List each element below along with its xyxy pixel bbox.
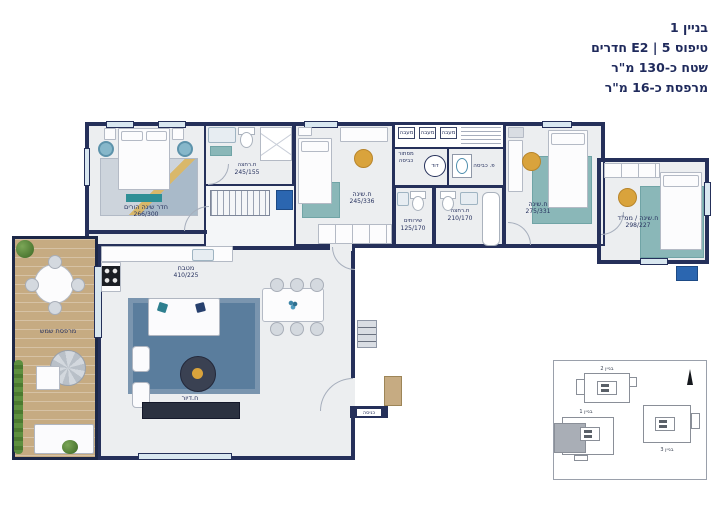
pillow [301,141,329,152]
ac-condenser: מעבה [419,127,436,139]
inset-building2-label: בניין 2 [600,366,613,372]
core-slit [601,389,609,392]
core-slit [659,425,667,428]
room-dims: 210/170 [448,215,473,223]
plant [16,240,34,258]
header-area: שטח כ-130 מ"ר [591,58,708,78]
condenser-label: מעבה [400,130,414,136]
plant [62,440,78,454]
room-name: חדר שינה הורים [124,203,168,211]
desk-chair [618,188,637,207]
armchair [132,346,150,372]
wall-niche [357,320,377,348]
window [704,182,711,216]
label-toilet: שירותים 125/170 [401,218,426,232]
ac-unit [676,266,698,281]
label-laundry: מסתור כביסה [393,151,419,165]
room-dims: 275/331 [526,208,551,216]
dining-chair [290,322,304,336]
closet [318,224,392,244]
label-balcony: מרפסת שמש [40,327,76,335]
header-balcony: מרפסת כ-16 מ"ר [591,78,708,98]
room-name: ח.דיור [182,394,199,402]
label-bedroom2: ח.שינה 245/336 [350,190,375,206]
window [106,121,134,128]
pouf [98,141,114,157]
sink [397,192,409,206]
condenser-label: מעבה [421,130,435,136]
label-laundry-corner: פ. כביסה [473,163,494,170]
building3-wing [691,413,700,429]
stairs [210,190,270,216]
key-plan-inset: בניין 2 בניין 1 בניין 3 [553,360,707,480]
dining-chair [290,278,304,292]
elevator [276,190,293,210]
room-name: ח.שינה [526,200,551,208]
floorplan-page: בניין 1 טיפוס E2 | 5 חדרים שטח כ-130 מ"ר… [0,0,725,508]
room-name: מרפסת שמש [40,327,76,335]
nightstand [172,128,184,140]
wardrobe [604,163,660,178]
dining-chair [270,278,284,292]
desk-chair [354,149,373,168]
north-arrow-icon [687,369,693,385]
nightstand [104,128,116,140]
label-bathroom: ח.רחצה 210/170 [448,208,473,222]
room-name: ח.רחצה [235,162,260,169]
decor-bowl [192,368,203,379]
entrance-label-box: כניסה [356,408,382,417]
window [158,121,186,128]
room-name: ח.שינה / ממ"ד [618,214,659,222]
sink [460,192,478,205]
stove [102,266,120,286]
pillow [121,131,143,141]
kitchen-sink [192,249,214,261]
planter [14,360,23,454]
bathtub [482,192,500,246]
ac-condenser: מעבה [398,127,415,139]
pillow [551,133,585,145]
label-bedroom3: ח.שינה 275/331 [526,200,551,216]
centerpiece [288,300,298,310]
washing-machine [452,154,472,178]
balcony-chair [71,278,85,292]
bath-mat [210,146,232,156]
balcony-table [34,264,74,304]
tv-console [142,402,240,419]
dining-chair [270,322,284,336]
room-dims: 245/336 [350,198,375,206]
room-dims: 125/170 [401,225,426,233]
window [542,121,572,128]
condenser-label: מעבה [442,130,456,136]
room-name: פ. כביסה [473,163,494,170]
header-type: טיפוס E2 | 5 חדרים [591,38,708,58]
dining-chair [310,322,324,336]
pergola-hatch [461,127,501,145]
pillow [663,175,699,187]
boiler: דוד [424,155,446,177]
building2-wing [629,377,637,387]
window [138,453,232,460]
plan-header: בניין 1 טיפוס E2 | 5 חדרים שטח כ-130 מ"ר… [591,18,708,98]
window [84,148,90,186]
room-name: שירותים [401,218,426,225]
core-slit [659,420,667,423]
room-dims: 266/300 [124,211,168,219]
label-master-bath: ח.רחצה 245/155 [235,162,260,176]
core-slit [584,435,592,438]
building2-wing [576,379,585,395]
desk [508,140,523,192]
dining-chair [310,278,324,292]
room-dims: 298/227 [618,222,659,230]
pouf [177,141,193,157]
balcony-chair [48,301,62,315]
cabinet [508,127,524,138]
inset-building3-label: בניין 3 [660,447,673,453]
sink [208,127,236,143]
ac-condenser: מעבה [440,127,457,139]
balcony-chair [25,278,39,292]
desk-chair [522,152,541,171]
shower [260,127,292,161]
room-name: מסתור כביסה [393,151,419,165]
window [640,258,668,265]
toilet-bowl [412,196,424,211]
core-slit [601,384,609,387]
entrance-label: כניסה [363,410,375,416]
header-building: בניין 1 [591,18,708,38]
entry-mat [384,376,402,406]
boiler-label: דוד [431,163,439,169]
label-mamad: ח.שינה / ממ"ד 298/227 [618,214,659,230]
desk [340,127,388,142]
label-kitchen: מטבח 410/225 [174,264,199,280]
label-living: ח.דיור [182,394,199,402]
pillow [146,131,167,141]
room-name: מטבח [174,264,199,272]
core-slit [584,430,592,433]
balcony-chair [48,255,62,269]
balcony-side-table [36,366,60,390]
room-name: ח.רחצה [448,208,473,215]
label-master-bedroom: חדר שינה הורים 266/300 [124,203,168,219]
inset-building1-label: בניין 1 [579,409,592,415]
building1-wing [574,455,588,461]
nightstand [298,127,312,136]
toilet-bowl [240,132,253,148]
bed-bench [126,194,162,202]
room-dims: 245/155 [235,169,260,177]
room-dims: 410/225 [174,272,199,280]
room-name: ח.שינה [350,190,375,198]
